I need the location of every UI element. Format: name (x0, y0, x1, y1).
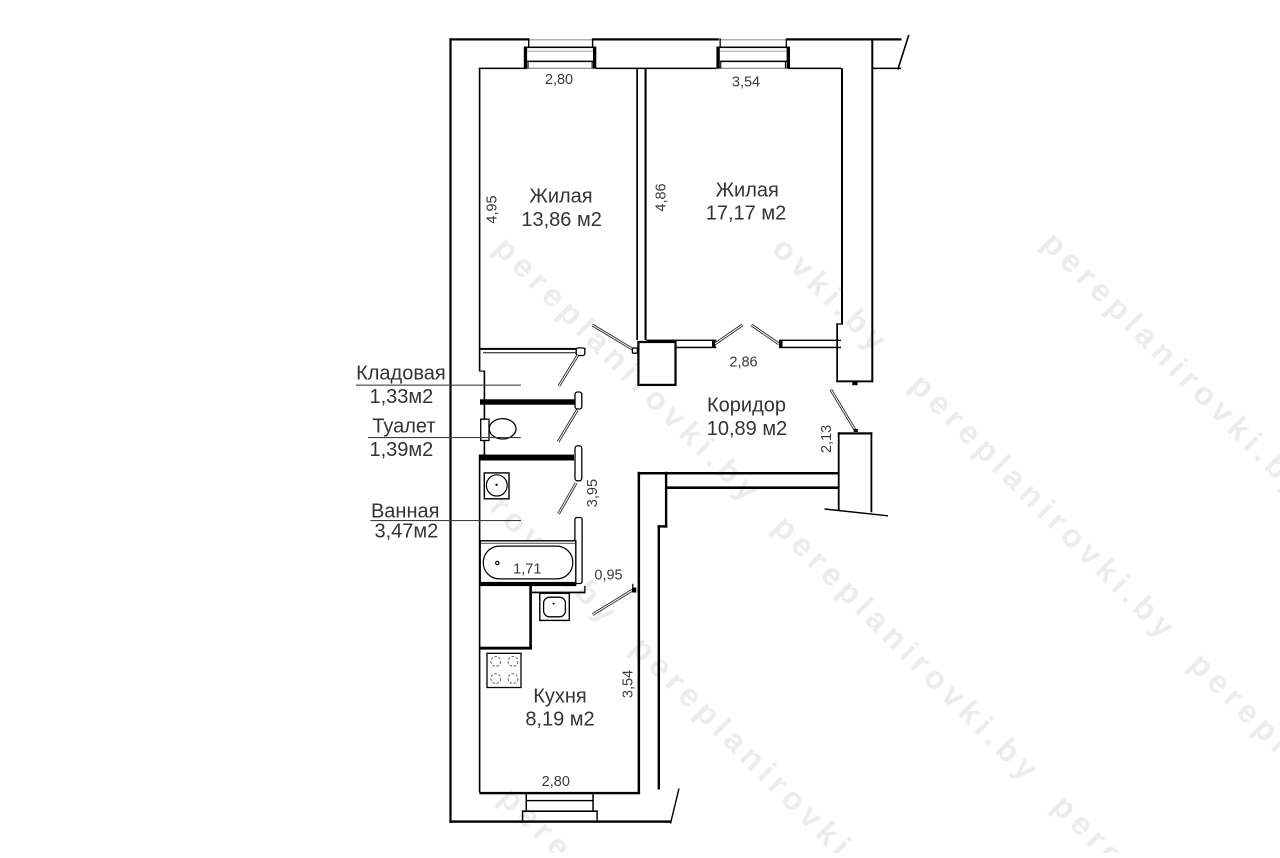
svg-text:10,89 м2: 10,89 м2 (707, 418, 787, 440)
svg-text:Кладовая: Кладовая (356, 363, 446, 385)
svg-text:3,54: 3,54 (621, 670, 637, 698)
svg-text:Туалет: Туалет (372, 416, 435, 438)
svg-text:2,80: 2,80 (542, 774, 570, 790)
svg-text:3,54: 3,54 (732, 75, 760, 91)
svg-text:2,13: 2,13 (819, 425, 835, 453)
svg-text:3,95: 3,95 (585, 479, 601, 507)
svg-text:1,39м2: 1,39м2 (369, 439, 433, 461)
svg-text:Жилая: Жилая (529, 186, 592, 208)
svg-text:0,95: 0,95 (594, 567, 622, 583)
svg-text:2,80: 2,80 (545, 72, 573, 88)
svg-text:17,17 м2: 17,17 м2 (706, 203, 786, 225)
svg-text:1,33м2: 1,33м2 (369, 386, 433, 408)
svg-text:Ванная: Ванная (371, 501, 440, 523)
svg-text:Коридор: Коридор (707, 395, 786, 417)
svg-text:1,71: 1,71 (513, 561, 541, 577)
svg-text:3,47м2: 3,47м2 (374, 520, 438, 542)
svg-text:Кухня: Кухня (533, 686, 587, 708)
svg-text:4,86: 4,86 (654, 183, 670, 211)
svg-text:Жилая: Жилая (716, 180, 779, 202)
svg-text:13,86 м2: 13,86 м2 (521, 209, 601, 231)
svg-text:2,86: 2,86 (729, 354, 757, 370)
svg-text:4,95: 4,95 (485, 195, 501, 223)
svg-text:8,19 м2: 8,19 м2 (525, 709, 594, 731)
